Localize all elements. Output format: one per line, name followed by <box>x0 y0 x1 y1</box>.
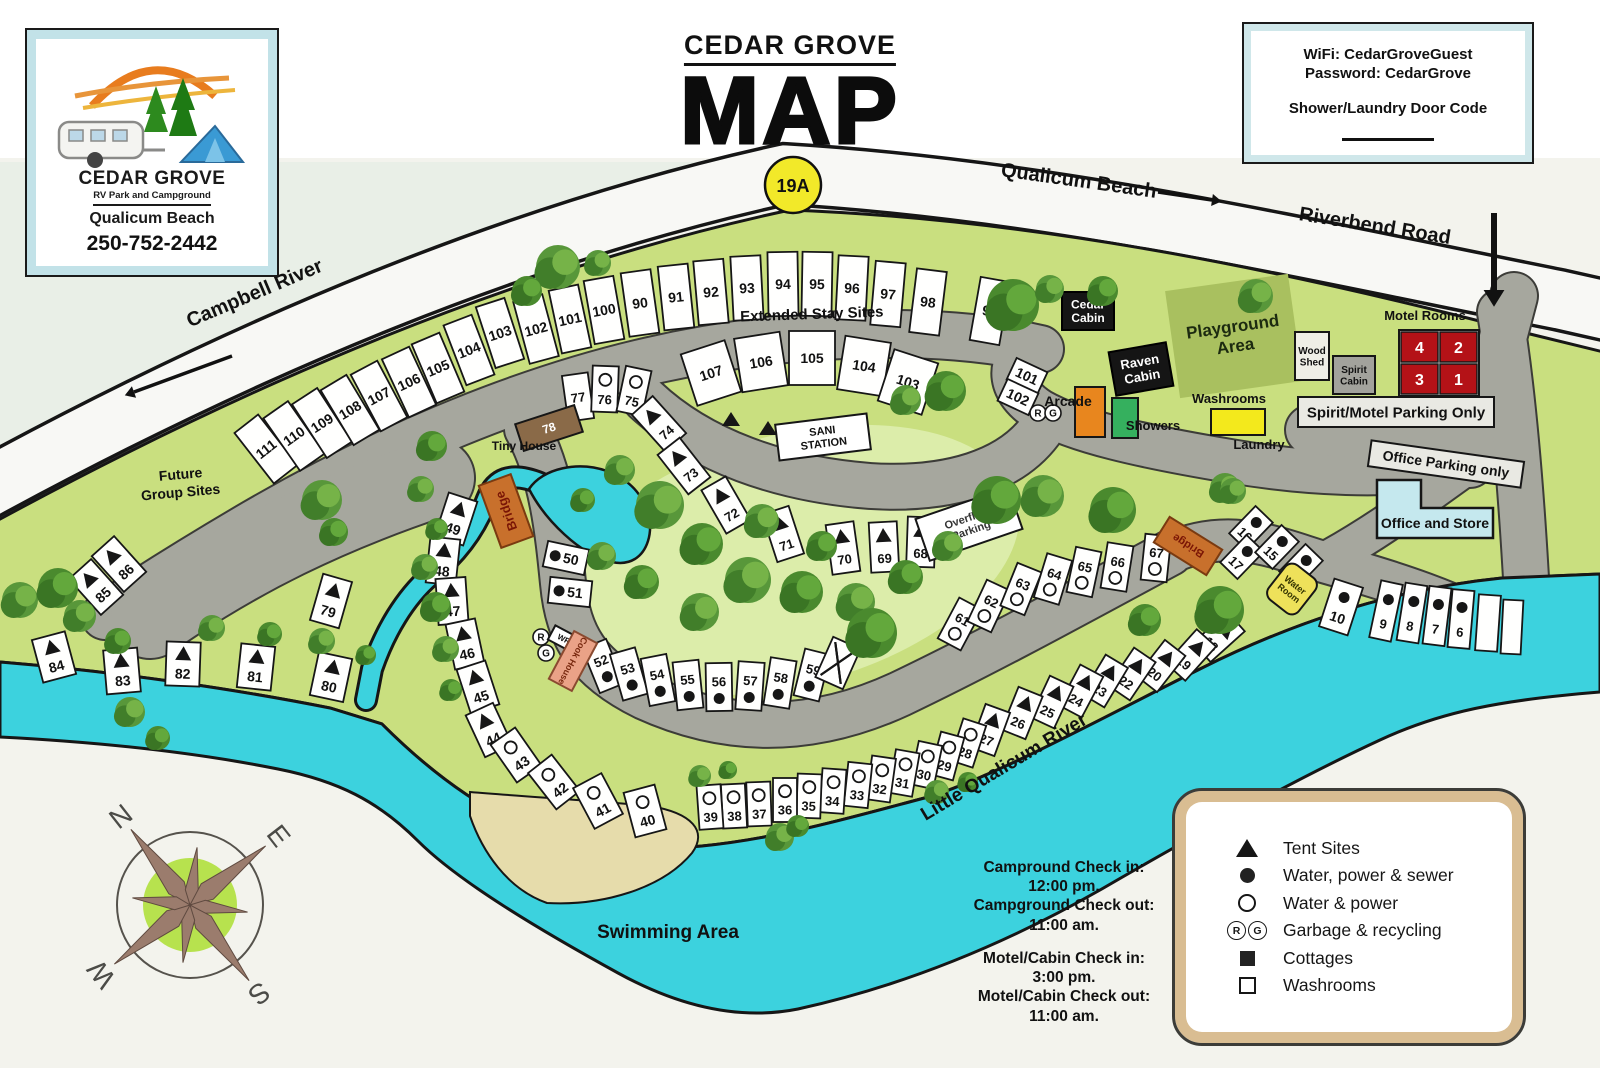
legend-label: Cottages <box>1283 948 1353 969</box>
svg-text:Office and Store: Office and Store <box>1381 515 1489 531</box>
road <box>1310 430 1510 446</box>
svg-text:Spirit: Spirit <box>1341 365 1367 376</box>
legend-item-osquare: Washrooms <box>1175 972 1523 1000</box>
svg-text:R: R <box>537 633 545 644</box>
site-91: 91 <box>658 264 695 331</box>
svg-text:Cabin: Cabin <box>1340 376 1368 387</box>
site-36: 36 <box>773 778 797 822</box>
svg-text:Wood: Wood <box>1298 346 1326 357</box>
svg-text:77: 77 <box>570 389 586 406</box>
svg-text:Shed: Shed <box>1300 357 1324 368</box>
check-times: Campround Check in:12:00 pm.Campground C… <box>918 858 1210 1026</box>
wifi-password: Password: CedarGrove <box>1305 65 1471 84</box>
svg-text:33: 33 <box>849 787 865 803</box>
svg-text:82: 82 <box>175 665 191 682</box>
svg-text:4: 4 <box>1415 340 1424 357</box>
logo-city: Qualicum Beach <box>89 210 214 228</box>
site-39: 39 <box>696 784 723 830</box>
logo-name: CEDAR GROVE <box>79 169 226 188</box>
site-55: 55 <box>673 660 704 710</box>
svg-text:75: 75 <box>623 393 640 411</box>
label-showers: Showers <box>1126 418 1180 433</box>
svg-text:69: 69 <box>877 551 892 567</box>
door-code-blank <box>1342 138 1434 141</box>
site-34: 34 <box>819 768 846 814</box>
spirit-motel-parking: Spirit/Motel Parking Only <box>1298 397 1494 427</box>
svg-text:83: 83 <box>114 672 131 689</box>
garbage-icon: G <box>538 645 554 661</box>
label-washrooms: Washrooms <box>1192 391 1266 406</box>
svg-text:1: 1 <box>1454 372 1463 389</box>
legend-item-circle: Water & power <box>1175 890 1523 918</box>
svg-text:94: 94 <box>775 276 791 292</box>
svg-text:90: 90 <box>631 294 649 312</box>
svg-text:3: 3 <box>1415 372 1424 389</box>
site-35: 35 <box>796 774 822 819</box>
svg-text:2: 2 <box>1454 340 1463 357</box>
park-logo: CEDAR GROVE RV Park and Campground Quali… <box>25 28 279 277</box>
site-76: 76 <box>591 366 619 413</box>
site-33: 33 <box>844 762 872 808</box>
dot-legend-icon <box>1221 868 1273 883</box>
trailer-window <box>69 130 83 141</box>
svg-text:G: G <box>542 649 550 660</box>
motel-rooms: Motel Rooms4231 <box>1384 308 1479 396</box>
legend-item-tent: Tent Sites <box>1175 835 1523 863</box>
circle-legend-icon <box>1221 894 1273 912</box>
trailer-window <box>113 130 127 141</box>
check-time-line <box>918 935 1210 949</box>
svg-text:96: 96 <box>844 280 861 297</box>
site-105: 105 <box>789 331 835 385</box>
logo-illustration <box>47 44 257 169</box>
svg-text:97: 97 <box>880 285 897 302</box>
label-tiny-house: Tiny House <box>492 439 557 453</box>
site-81: 81 <box>237 643 275 690</box>
logo-phone: 250-752-2442 <box>87 232 218 256</box>
laundry-building <box>1211 409 1265 435</box>
highway-19a-marker: 19A <box>765 157 821 213</box>
site-82: 82 <box>165 641 201 686</box>
check-time-line: Motel/Cabin Check in: <box>918 949 1210 968</box>
check-time-line: Campround Check in: <box>918 858 1210 877</box>
svg-text:31: 31 <box>894 774 911 791</box>
legend-label: Water & power <box>1283 893 1398 914</box>
svg-text:51: 51 <box>566 584 583 602</box>
rg-legend-icon: RG <box>1221 921 1273 940</box>
svg-text:32: 32 <box>871 781 887 798</box>
svg-text:36: 36 <box>778 803 792 818</box>
site-38: 38 <box>721 783 747 828</box>
recycling-icon: R <box>533 629 549 645</box>
legend-label: Tent Sites <box>1283 838 1360 859</box>
legend-item-dot: Water, power & sewer <box>1175 862 1523 890</box>
svg-text:Motel Rooms: Motel Rooms <box>1384 308 1466 323</box>
check-time-line: 11:00 am. <box>918 1007 1210 1026</box>
svg-text:70: 70 <box>836 551 852 568</box>
site-unnumbered <box>1501 600 1524 655</box>
site-92: 92 <box>693 259 728 325</box>
svg-text:105: 105 <box>800 350 824 366</box>
svg-text:98: 98 <box>919 293 937 311</box>
svg-text:58: 58 <box>773 669 790 686</box>
raven-cabin: RavenCabin <box>1109 342 1174 395</box>
svg-text:39: 39 <box>703 809 718 825</box>
svg-text:81: 81 <box>246 668 263 686</box>
svg-text:Cabin: Cabin <box>1071 311 1104 325</box>
svg-text:Spirit/Motel Parking Only: Spirit/Motel Parking Only <box>1307 404 1486 421</box>
check-time-line: Motel/Cabin Check out: <box>918 987 1210 1006</box>
svg-text:95: 95 <box>809 276 825 292</box>
playground-area: PlaygroundArea <box>1165 274 1303 398</box>
svg-text:56: 56 <box>712 674 727 689</box>
svg-text:91: 91 <box>667 288 684 306</box>
pine-tree-icon <box>169 78 197 136</box>
check-time-line: 11:00 am. <box>918 916 1210 935</box>
svg-text:65: 65 <box>1076 558 1093 576</box>
label-arcade: Arcade <box>1044 393 1092 409</box>
check-time-line: Campground Check out: <box>918 896 1210 915</box>
legend-item-rg: RGGarbage & recycling <box>1175 917 1523 945</box>
site-51: 51 <box>548 577 592 607</box>
legend-label: Garbage & recycling <box>1283 920 1442 941</box>
osquare-legend-icon <box>1221 977 1273 994</box>
svg-text:38: 38 <box>727 808 742 824</box>
page-title: CEDAR GROVE MAP <box>680 30 900 156</box>
site-57: 57 <box>735 661 764 711</box>
logo-subtitle: RV Park and Campground <box>93 190 211 206</box>
pine-tree-icon <box>144 86 168 132</box>
site-unnumbered <box>1475 594 1501 651</box>
site-37: 37 <box>746 782 772 827</box>
svg-text:76: 76 <box>597 392 612 407</box>
site-56: 56 <box>706 663 733 711</box>
svg-text:66: 66 <box>1109 553 1126 570</box>
title-map: MAP <box>680 66 900 156</box>
square-legend-icon <box>1221 951 1273 966</box>
legend-label: Washrooms <box>1283 975 1376 996</box>
svg-text:37: 37 <box>752 806 767 821</box>
site-6: 6 <box>1448 589 1475 649</box>
site-106: 106 <box>734 332 788 393</box>
spirit-cabin: SpiritCabin <box>1333 356 1375 394</box>
check-time-line: 3:00 pm. <box>918 968 1210 987</box>
legend-item-square: Cottages <box>1175 945 1523 973</box>
wifi-info-box: WiFi: CedarGroveGuest Password: CedarGro… <box>1242 22 1534 164</box>
svg-text:R: R <box>1034 409 1042 420</box>
trailer-wheel <box>87 152 103 168</box>
svg-text:34: 34 <box>825 793 841 809</box>
trailer-window <box>91 130 105 141</box>
check-time-line: 12:00 pm. <box>918 877 1210 896</box>
svg-text:35: 35 <box>801 798 816 813</box>
svg-text:G: G <box>1049 409 1057 420</box>
map-legend: Tent SitesWater, power & sewerWater & po… <box>1172 788 1526 1046</box>
wood-shed: WoodShed <box>1295 332 1329 380</box>
svg-text:92: 92 <box>703 283 720 300</box>
label-laundry: Laundry <box>1233 437 1285 452</box>
svg-text:55: 55 <box>679 672 695 688</box>
label-swimming-area: Swimming Area <box>597 922 739 943</box>
tent-legend-icon <box>1221 839 1273 857</box>
svg-text:19A: 19A <box>776 176 809 196</box>
svg-text:6: 6 <box>1456 624 1465 640</box>
legend-label: Water, power & sewer <box>1283 865 1454 886</box>
svg-text:93: 93 <box>739 280 756 297</box>
door-code-label: Shower/Laundry Door Code <box>1289 100 1487 119</box>
wifi-name: WiFi: CedarGroveGuest <box>1303 46 1472 65</box>
site-83: 83 <box>103 648 141 695</box>
svg-text:57: 57 <box>743 673 758 689</box>
